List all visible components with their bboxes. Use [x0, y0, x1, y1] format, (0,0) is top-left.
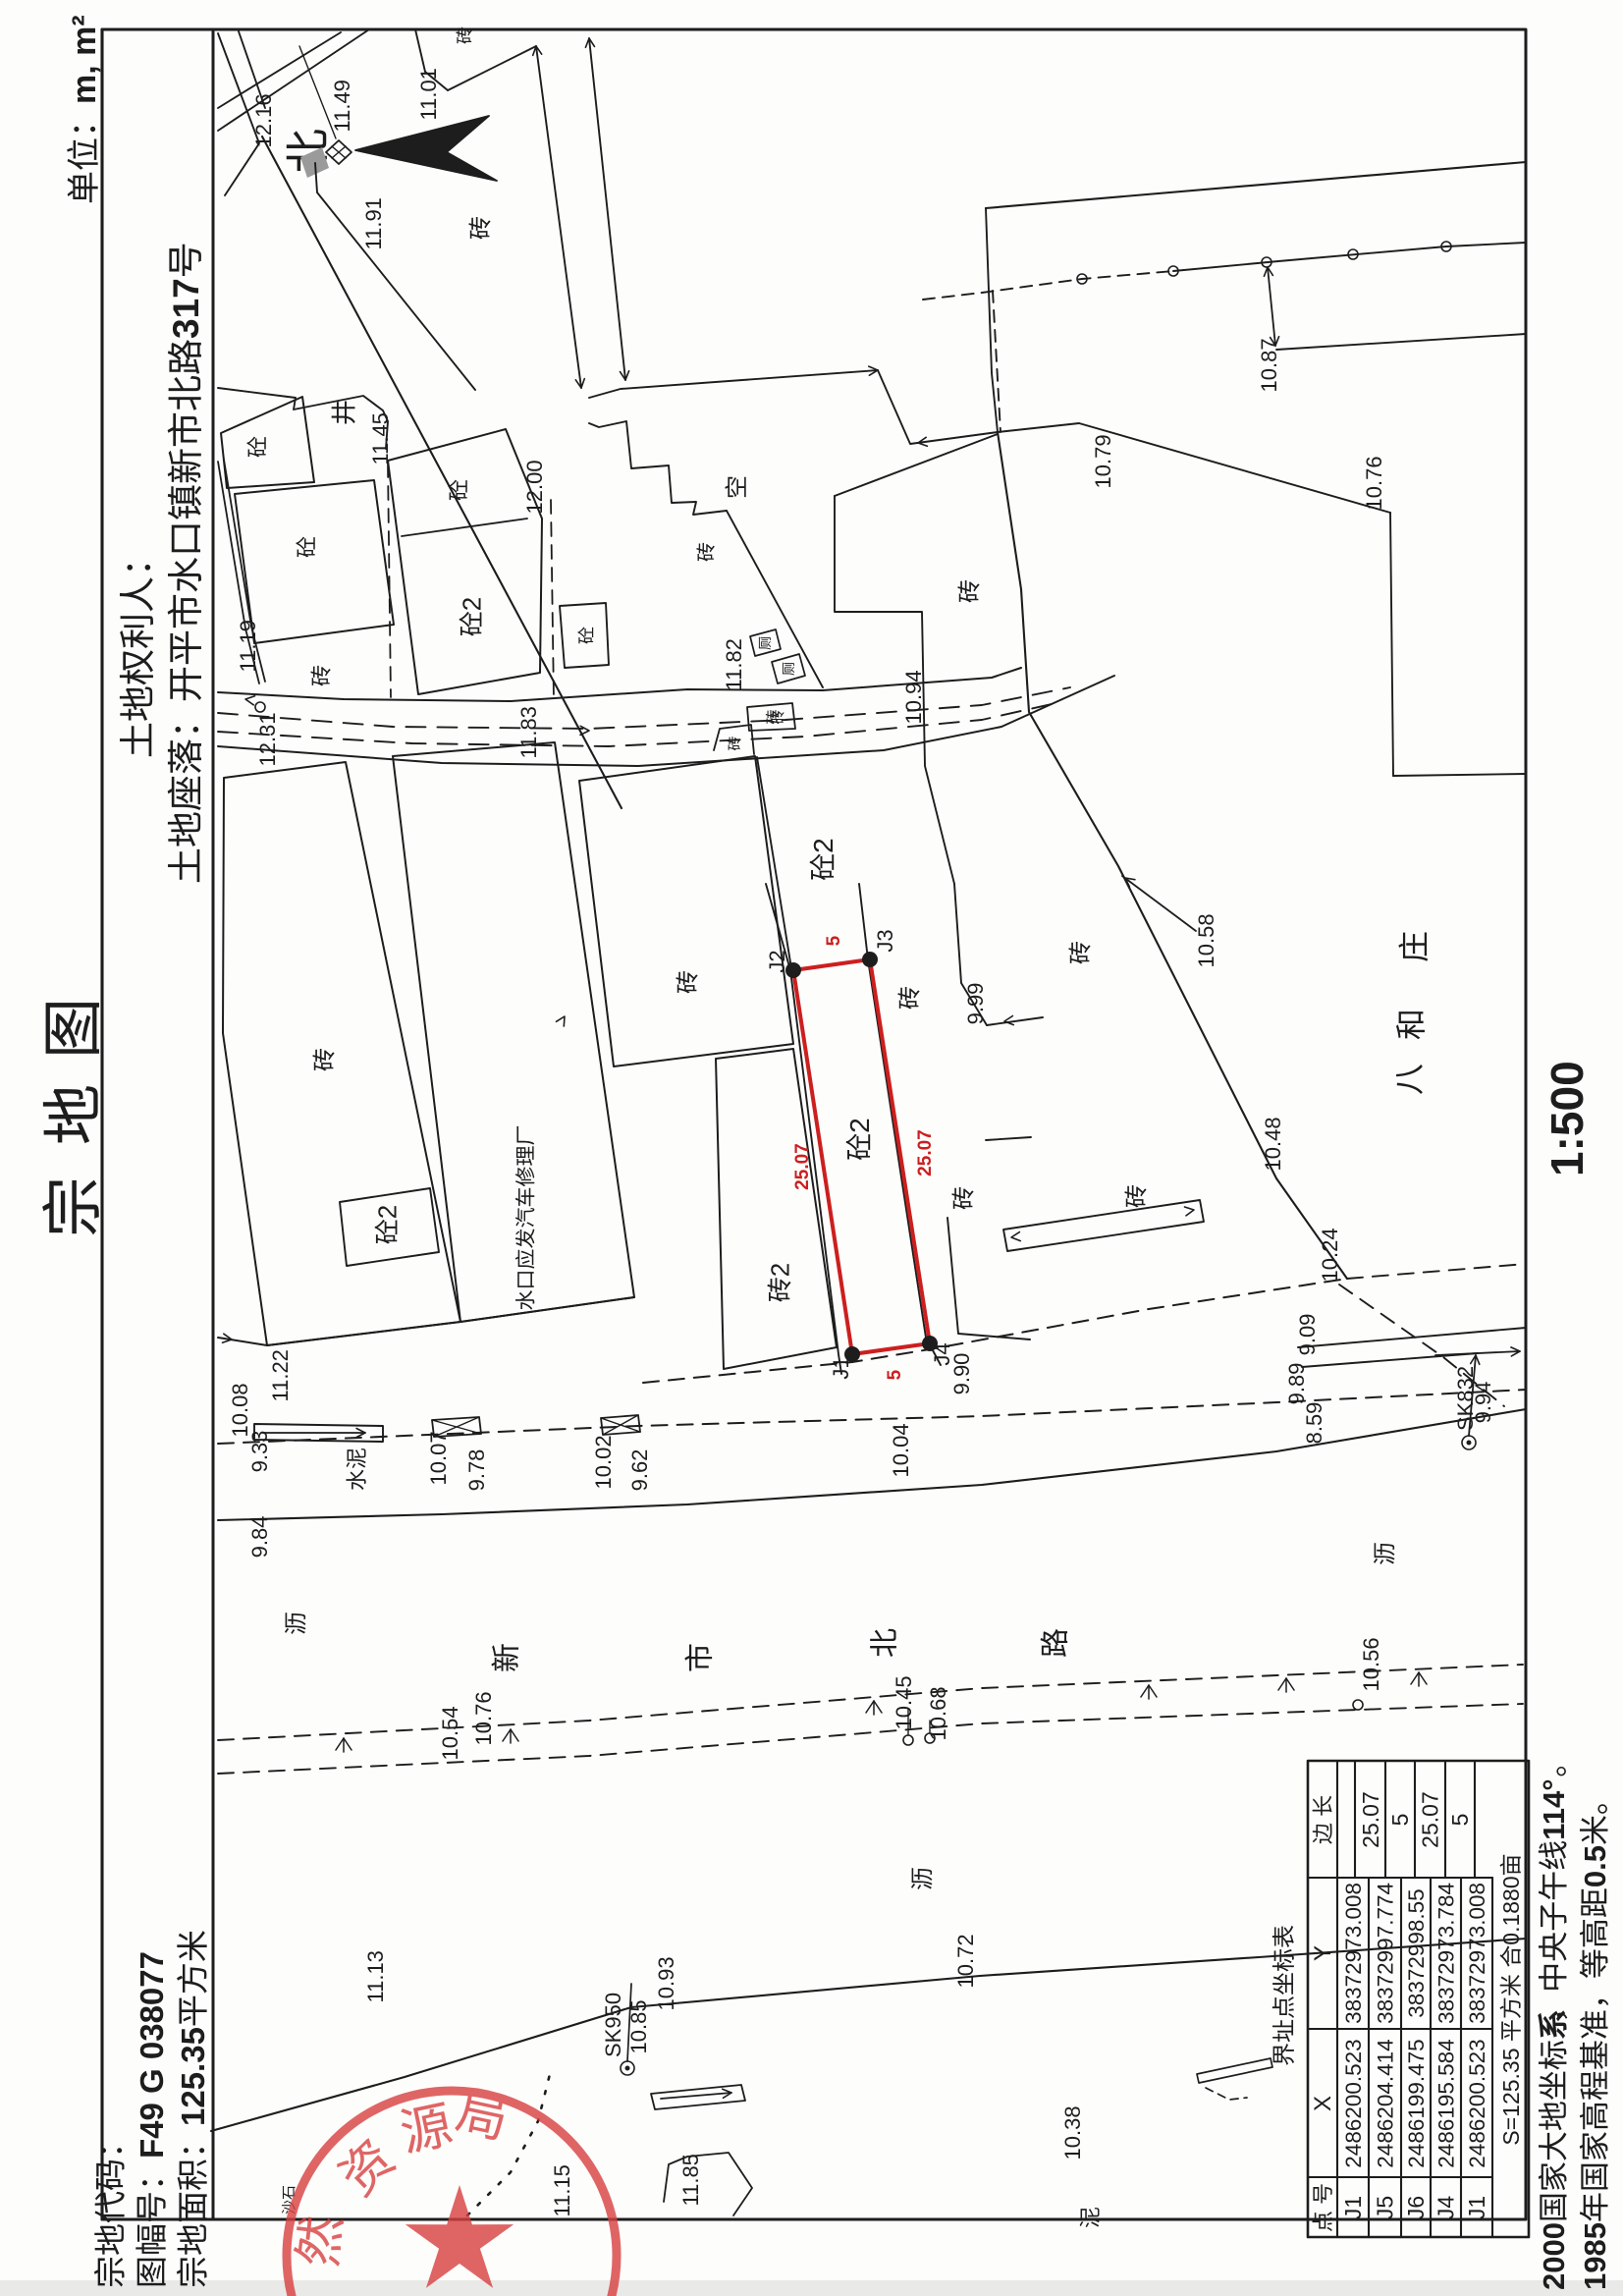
svg-text:2: 2	[457, 597, 486, 611]
svg-text:25.07: 25.07	[1358, 1791, 1383, 1848]
svg-text:J2: J2	[765, 950, 789, 972]
svg-text:11.13: 11.13	[363, 1950, 388, 2002]
svg-text:38372998.55: 38372998.55	[1404, 1888, 1429, 2017]
svg-text:11.19: 11.19	[236, 620, 260, 672]
svg-text:10.76: 10.76	[1362, 456, 1386, 510]
svg-text:10.72: 10.72	[953, 1934, 978, 1988]
svg-text:25.07: 25.07	[792, 1143, 813, 1190]
svg-text:2: 2	[808, 838, 839, 853]
svg-text:J1: J1	[1464, 2196, 1489, 2219]
svg-text:J1: J1	[829, 1356, 853, 1379]
svg-text:5: 5	[1447, 1814, 1473, 1827]
svg-text:12.00: 12.00	[522, 460, 547, 514]
svg-text:2: 2	[372, 1205, 402, 1219]
svg-text:317: 317	[166, 278, 206, 339]
svg-text:11.82: 11.82	[722, 638, 746, 690]
svg-text:10.48: 10.48	[1261, 1117, 1285, 1171]
svg-text:9.84: 9.84	[247, 1516, 272, 1558]
svg-text:11.91: 11.91	[361, 197, 386, 249]
svg-text:10.87: 10.87	[1257, 338, 1281, 392]
svg-text:11.83: 11.83	[516, 706, 541, 758]
svg-text:系: 系	[1537, 2009, 1571, 2040]
svg-text:38372973.784: 38372973.784	[1434, 1883, 1459, 2024]
svg-text:38372973.008: 38372973.008	[1341, 1883, 1366, 2024]
svg-text:1985: 1985	[1578, 2222, 1612, 2290]
svg-text:J1: J1	[1340, 2196, 1366, 2219]
svg-text:114°: 114°	[1537, 1778, 1571, 1839]
svg-text:J4: J4	[1434, 2196, 1459, 2220]
svg-text:12.16: 12.16	[251, 93, 276, 147]
svg-text:11.15: 11.15	[550, 2164, 574, 2216]
svg-text:X: X	[1310, 2096, 1336, 2111]
svg-text:38372997.774: 38372997.774	[1374, 1883, 1398, 2024]
svg-text:2: 2	[765, 1263, 794, 1277]
svg-text:2: 2	[844, 1118, 875, 1133]
svg-text:m, m²: m, m²	[66, 15, 103, 104]
svg-text:10.08: 10.08	[228, 1383, 252, 1437]
svg-text:0.1880: 0.1880	[1498, 1876, 1524, 1944]
svg-text:S=125.35: S=125.35	[1498, 2048, 1524, 2145]
svg-text:10.24: 10.24	[1318, 1228, 1342, 1282]
svg-text:10.79: 10.79	[1091, 434, 1115, 488]
svg-text:5: 5	[1387, 1814, 1413, 1827]
svg-text:10.07: 10.07	[426, 1431, 451, 1485]
svg-text:10.85: 10.85	[626, 1999, 651, 2053]
svg-text:10.68: 10.68	[926, 1686, 950, 1740]
svg-text:9.78: 9.78	[464, 1449, 489, 1492]
svg-text:J3: J3	[873, 929, 897, 952]
svg-text:8.59: 8.59	[1302, 1402, 1326, 1445]
svg-text:11.49: 11.49	[330, 80, 354, 132]
svg-text:10.93: 10.93	[654, 1956, 678, 2010]
svg-text:5: 5	[824, 935, 844, 946]
svg-text:5: 5	[885, 1369, 905, 1380]
svg-text:10.54: 10.54	[438, 1706, 462, 1760]
svg-text:125.35: 125.35	[175, 2027, 211, 2126]
svg-text:11.01: 11.01	[416, 68, 441, 120]
svg-text:10.04: 10.04	[889, 1423, 913, 1477]
svg-text:10.56: 10.56	[1359, 1637, 1383, 1691]
svg-text:1:500: 1:500	[1542, 1061, 1593, 1176]
svg-text:9.33: 9.33	[247, 1431, 272, 1473]
svg-text:9.62: 9.62	[627, 1449, 652, 1492]
svg-text:2486199.475: 2486199.475	[1404, 2039, 1429, 2167]
svg-text:SK832: SK832	[1453, 1366, 1478, 1431]
svg-text:9.99: 9.99	[963, 983, 988, 1025]
svg-text:38372973.008: 38372973.008	[1465, 1883, 1489, 2024]
svg-text:10.58: 10.58	[1194, 913, 1218, 967]
svg-text:2000: 2000	[1537, 2222, 1571, 2290]
svg-text:J6: J6	[1403, 2196, 1429, 2219]
svg-text:12.31: 12.31	[255, 712, 280, 766]
svg-text:SK950: SK950	[601, 1993, 625, 2057]
svg-text:25.07: 25.07	[915, 1129, 936, 1176]
svg-text:25.07: 25.07	[1418, 1791, 1443, 1848]
svg-text:2486200.523: 2486200.523	[1465, 2039, 1489, 2167]
svg-text:2486195.584: 2486195.584	[1434, 2039, 1459, 2167]
svg-text:11.45: 11.45	[368, 412, 393, 465]
svg-text:9.09: 9.09	[1295, 1314, 1320, 1356]
svg-text:F49 G 038077: F49 G 038077	[134, 1951, 170, 2159]
svg-text:10.45: 10.45	[892, 1675, 916, 1729]
svg-text:11.22: 11.22	[268, 1349, 293, 1401]
svg-text:10.38: 10.38	[1060, 2105, 1085, 2159]
svg-text:2486200.523: 2486200.523	[1341, 2039, 1366, 2167]
svg-text:11.85: 11.85	[678, 2154, 703, 2206]
svg-text:9.89: 9.89	[1284, 1363, 1309, 1405]
svg-text:10.94: 10.94	[901, 670, 926, 724]
svg-text:2486204.414: 2486204.414	[1374, 2039, 1398, 2167]
svg-text:0.5: 0.5	[1578, 1845, 1612, 1887]
svg-text:10.76: 10.76	[471, 1691, 496, 1745]
svg-text:J5: J5	[1373, 2196, 1398, 2219]
svg-text:9.90: 9.90	[949, 1353, 974, 1395]
svg-text:10.02: 10.02	[591, 1435, 616, 1489]
